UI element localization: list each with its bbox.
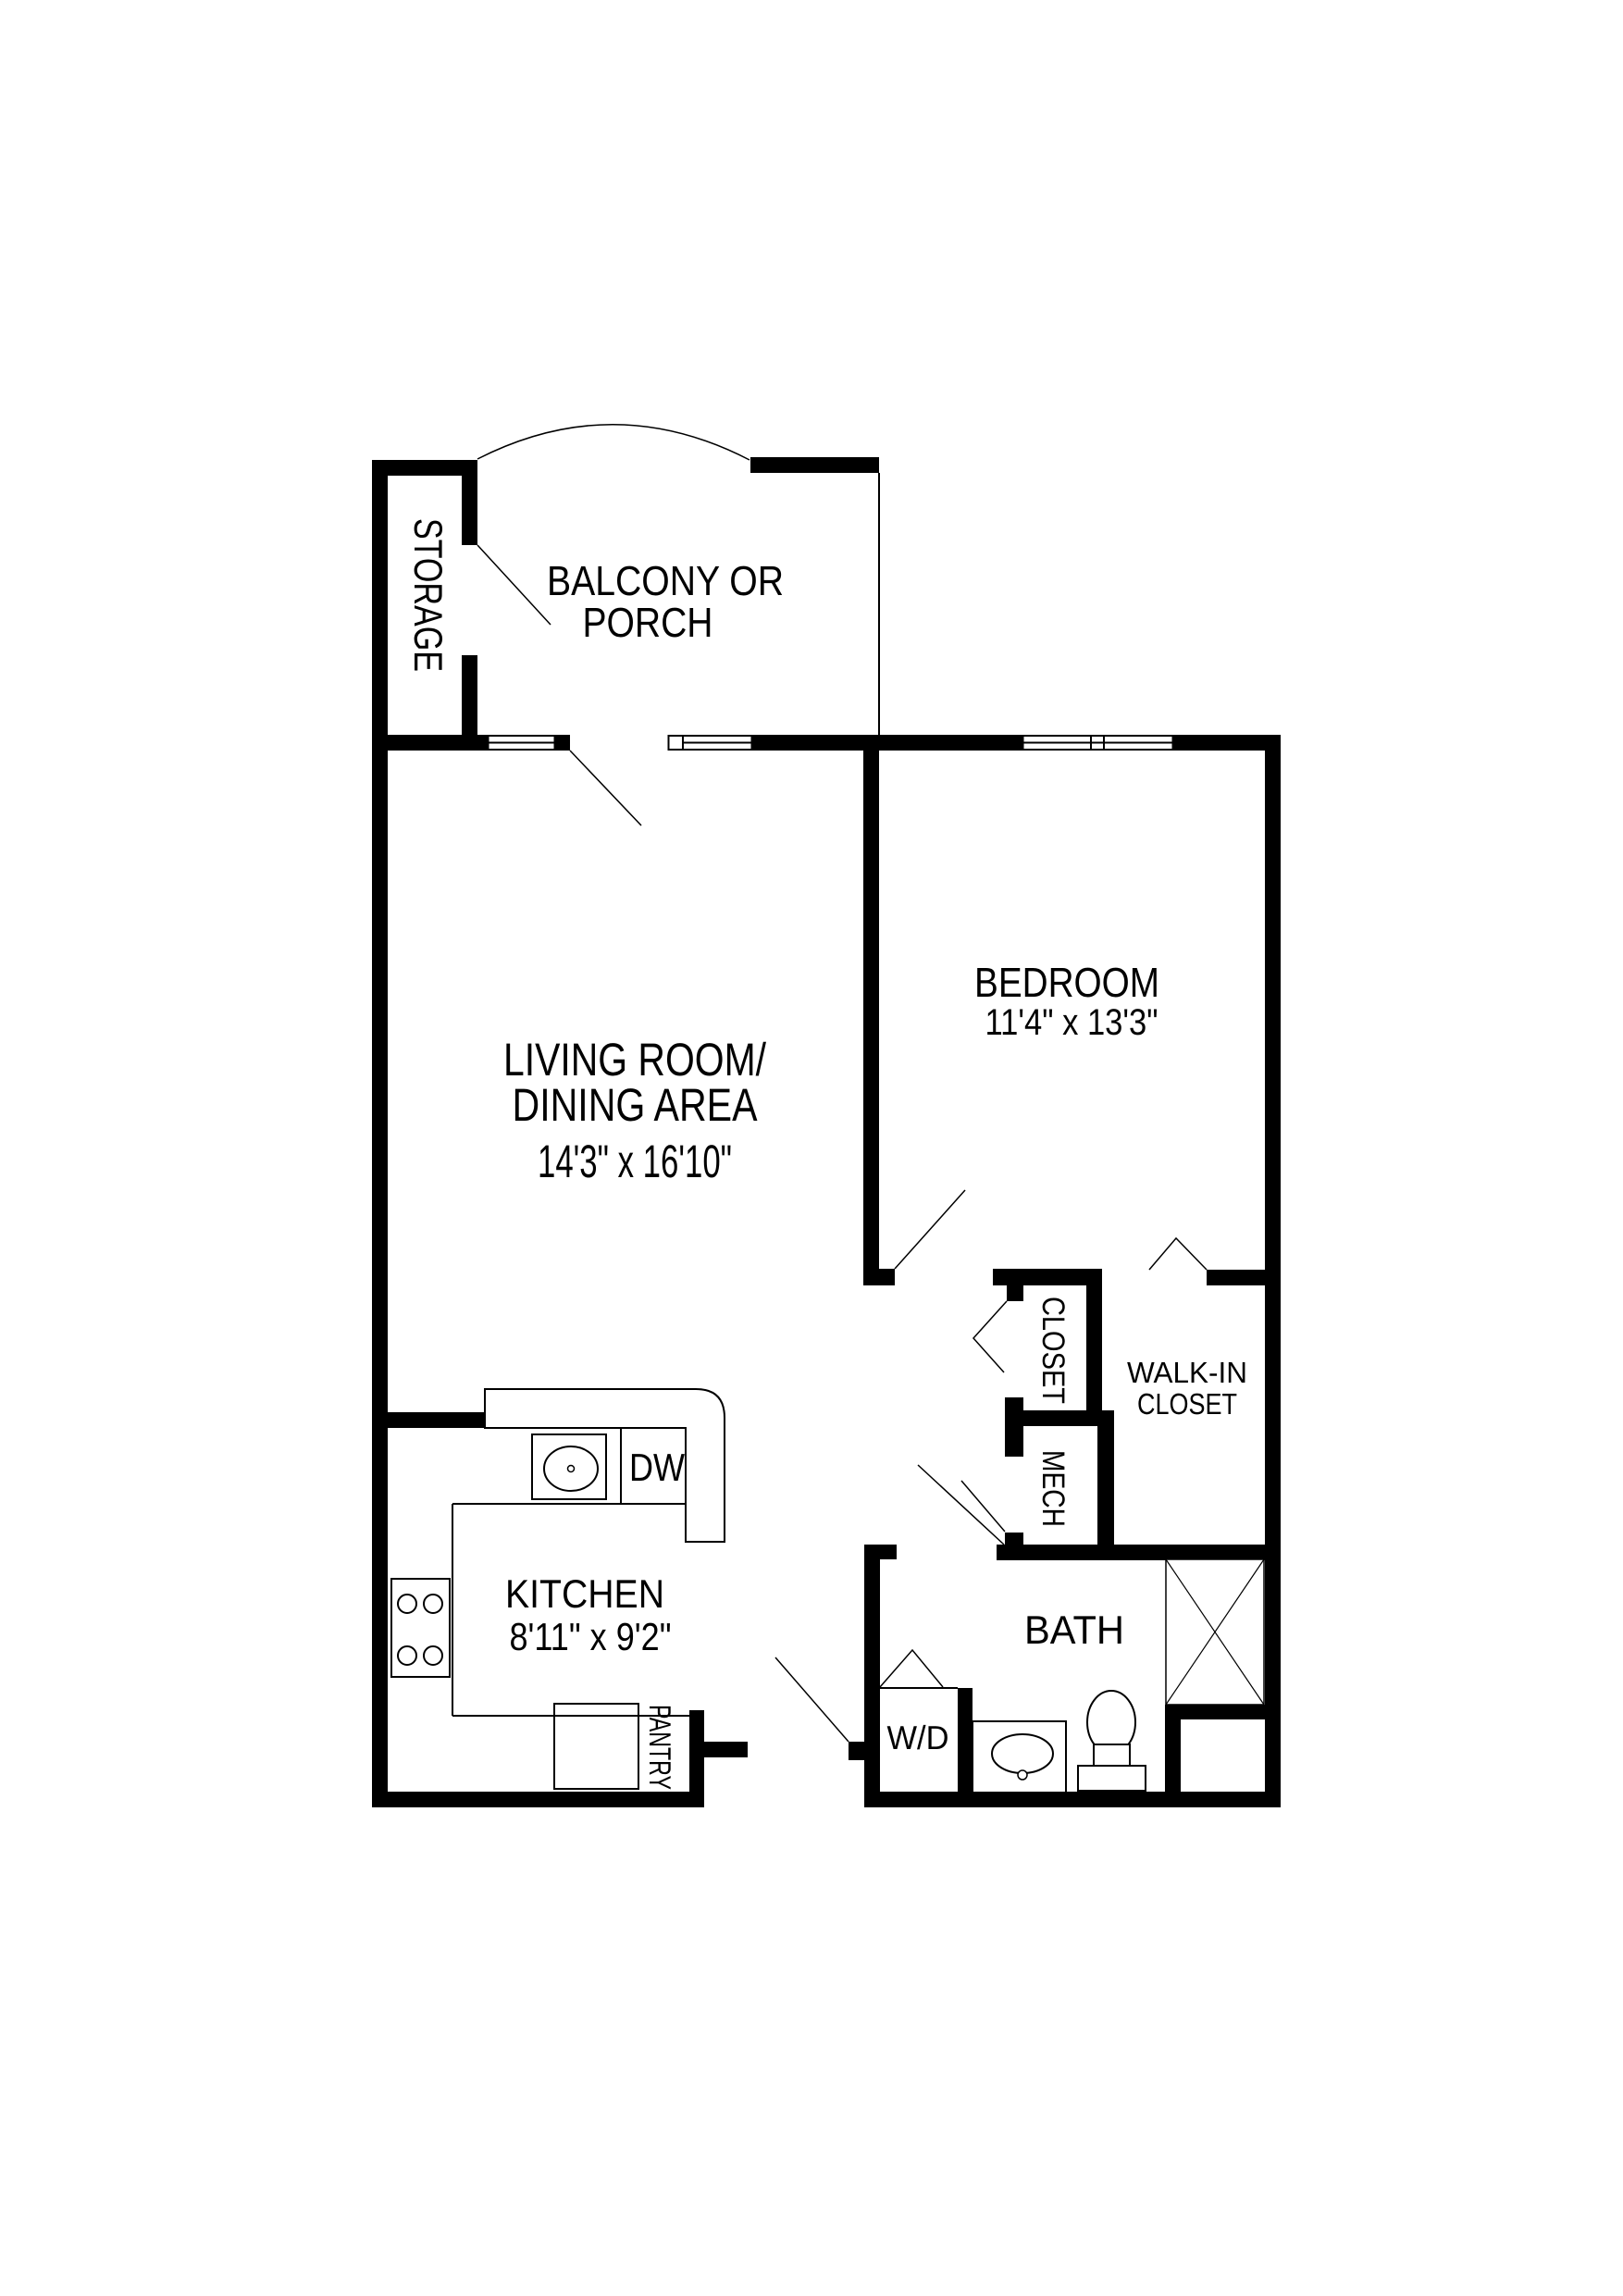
svg-text:W/D: W/D: [887, 1719, 949, 1756]
svg-text:MECH: MECH: [1035, 1450, 1071, 1527]
svg-text:14'3" x 16'10": 14'3" x 16'10": [538, 1136, 732, 1187]
svg-text:DINING AREA: DINING AREA: [513, 1079, 759, 1131]
svg-text:BALCONY OR: BALCONY OR: [547, 557, 784, 604]
svg-text:CLOSET: CLOSET: [1035, 1297, 1071, 1404]
svg-text:BATH: BATH: [1024, 1608, 1124, 1653]
svg-text:11'4" x 13'3": 11'4" x 13'3": [985, 1002, 1158, 1043]
svg-text:BEDROOM: BEDROOM: [974, 959, 1159, 1006]
svg-text:WALK-IN: WALK-IN: [1127, 1356, 1247, 1389]
svg-text:STORAGE: STORAGE: [405, 518, 450, 672]
svg-text:CLOSET: CLOSET: [1137, 1387, 1237, 1421]
svg-text:8'11" x 9'2": 8'11" x 9'2": [510, 1615, 672, 1658]
svg-text:LIVING ROOM/: LIVING ROOM/: [503, 1034, 766, 1086]
svg-text:KITCHEN: KITCHEN: [505, 1572, 664, 1617]
svg-text:PANTRY: PANTRY: [643, 1705, 677, 1790]
svg-text:PORCH: PORCH: [583, 599, 713, 646]
svg-text:DW: DW: [629, 1446, 685, 1489]
